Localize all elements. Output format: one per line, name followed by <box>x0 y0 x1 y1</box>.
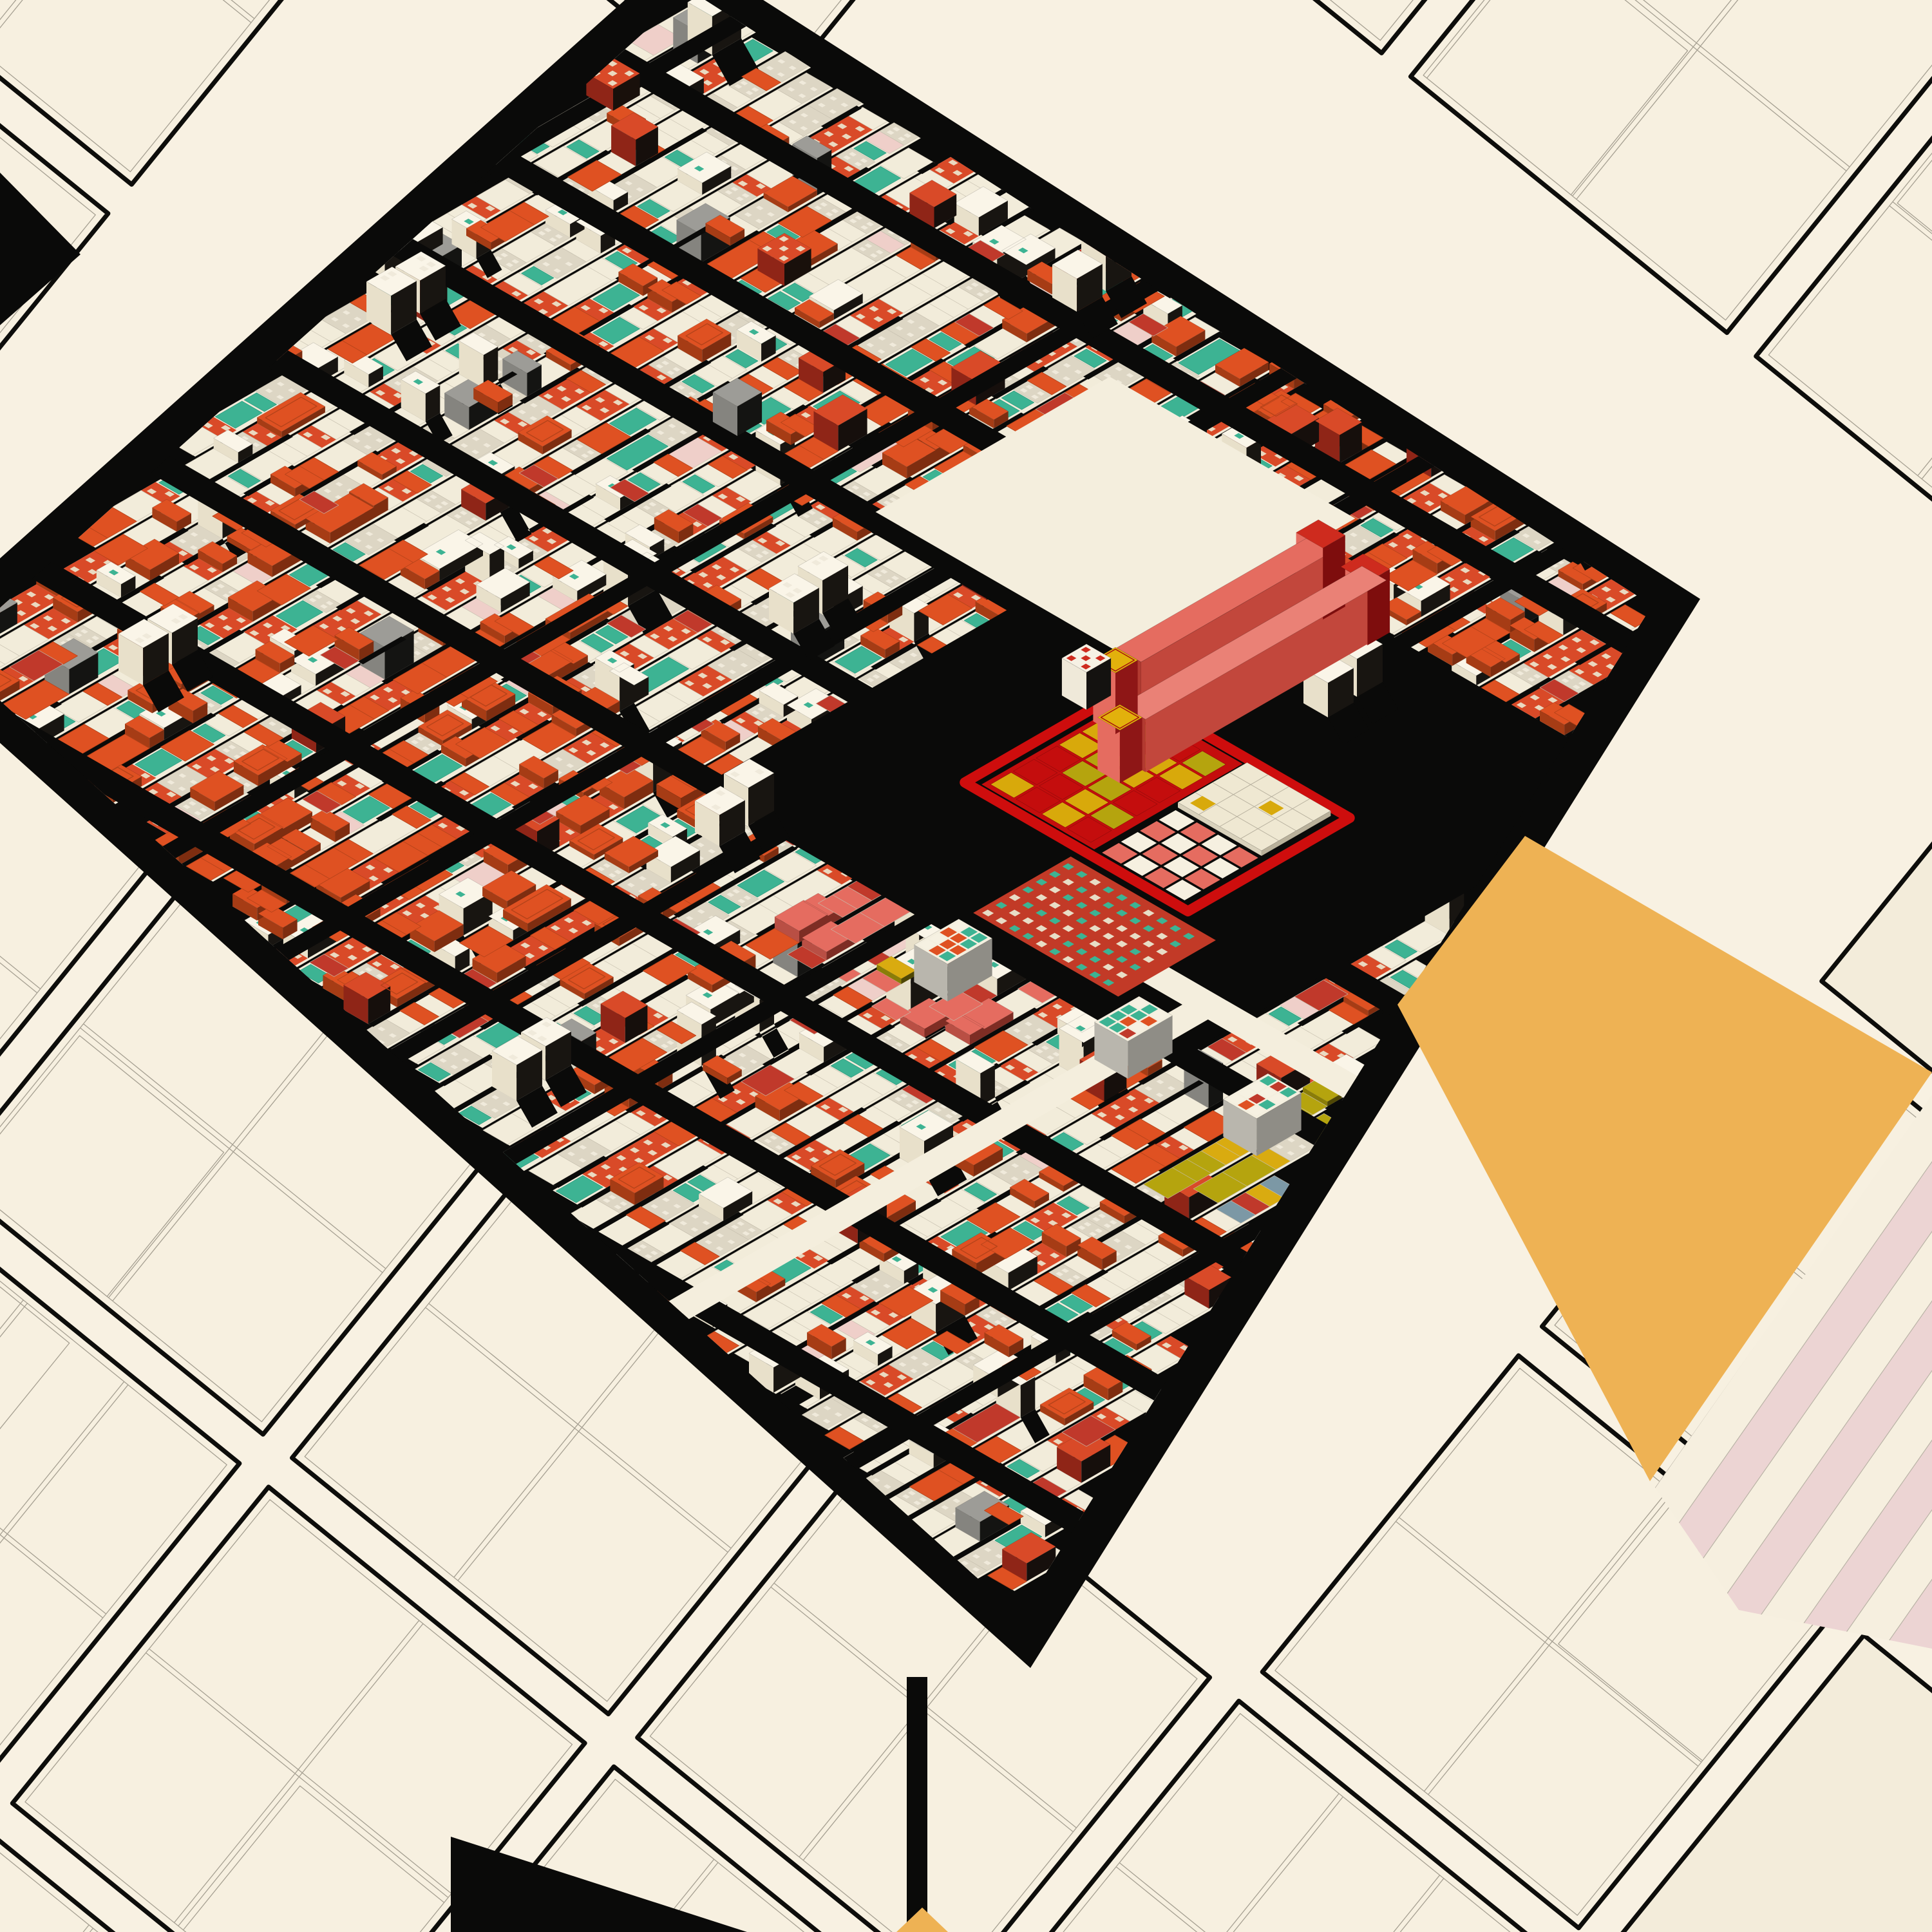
city-map-artwork <box>0 0 1932 1932</box>
map-canvas[interactable] <box>0 0 1932 1932</box>
